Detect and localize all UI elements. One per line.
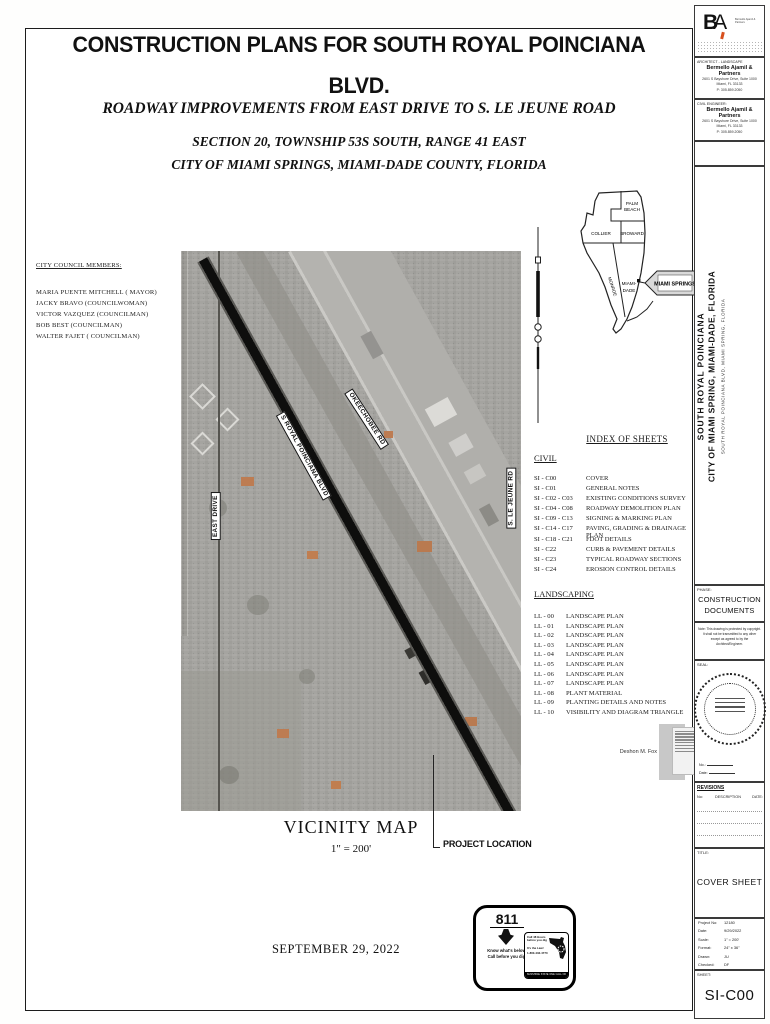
drawing-sheet: CONSTRUCTION PLANS FOR SOUTH ROYAL POINC… <box>25 28 693 1011</box>
ballfield <box>189 383 216 410</box>
engineer-firm: Bermello Ajamil & Partners <box>695 107 764 119</box>
sheet-row: LL - 06LANDSCAPE PLAN <box>534 671 692 681</box>
orange-roof <box>331 781 341 789</box>
sunshine-state-panel: Call 48 Hoursbefore you dig It's the Law… <box>524 932 569 979</box>
sheet-row: SI - C02 - C03EXISTING CONDITIONS SURVEY <box>534 495 692 505</box>
panel-bar: SUNSHINE STATE ONE CALL OF FLORIDA, INC. <box>525 972 568 978</box>
aerial-vicinity-map: EAST DRIVE S ROYAL POINCIANA BLVD OKEECH… <box>181 251 521 811</box>
project-title-block: SOUTH ROYAL POINCIANA CITY OF MIAMI SPRI… <box>694 166 765 585</box>
county-miami-dade-2: DADE <box>623 288 636 293</box>
main-title-line1: CONSTRUCTION PLANS FOR SOUTH ROYAL POINC… <box>36 32 682 58</box>
main-title-line2: BLVD. <box>36 73 682 99</box>
council-member: VICTOR VAZQUEZ (COUNCILMAN) <box>36 309 157 320</box>
phase-value: CONSTRUCTION DOCUMENTS <box>695 595 764 617</box>
section-township-line: SECTION 20, TOWNSHIP 53S SOUTH, RANGE 41… <box>26 134 692 150</box>
county-collier: COLLIER <box>591 231 611 236</box>
council-heading: CITY COUNCIL MEMBERS: <box>36 262 157 269</box>
sheet-row: SI - C24EROSION CONTROL DETAILS <box>534 566 692 576</box>
shovel-icon <box>498 929 514 945</box>
seal-date-line: Date: <box>699 769 735 775</box>
firm-logo-box: BA Bermello Ajamil & Partners <box>694 5 765 57</box>
sheet-title-block: TITLE: COVER SHEET <box>694 848 765 918</box>
sheet-row: SI - C00COVER <box>534 475 692 485</box>
sheet-label: SHEET: <box>697 972 711 977</box>
county-broward: BROWARD <box>620 231 645 236</box>
info-row: Format:24" x 36" <box>695 944 764 952</box>
parking-area <box>181 671 301 811</box>
city-council-members: CITY COUNCIL MEMBERS: MARIA PUENTE MITCH… <box>36 262 157 342</box>
phase-label: PHASE: <box>697 587 712 592</box>
phase-block: PHASE: CONSTRUCTION DOCUMENTS <box>694 585 765 622</box>
vicinity-map-caption: VICINITY MAP <box>251 817 451 838</box>
sheet-row: LL - 04LANDSCAPE PLAN <box>534 651 692 661</box>
sheet-row: LL - 02LANDSCAPE PLAN <box>534 632 692 642</box>
sheet-row: SI - C01GENERAL NOTES <box>534 485 692 495</box>
architect-block: ARCHITECT - LANDSCAPE Bermello Ajamil & … <box>694 57 765 99</box>
architect-label: ARCHITECT - LANDSCAPE <box>697 60 764 64</box>
county-palm-beach-1: PALM <box>626 201 638 206</box>
civil-sheet-list: SI - C00COVER SI - C01GENERAL NOTES SI -… <box>534 475 692 576</box>
sheet-title: COVER SHEET <box>695 877 764 887</box>
panel-phone: 1-800-432-4770 <box>527 952 548 955</box>
civil-heading: CIVIL <box>534 453 557 463</box>
vicinity-map-scale: 1" = 200' <box>251 843 451 855</box>
east-drive-label: EAST DRIVE <box>211 492 221 540</box>
engineer-label: CIVIL ENGINEER: <box>697 102 764 106</box>
orange-roof <box>277 729 289 738</box>
copyright-note-block: Note: This drawing is protected by copyr… <box>694 622 765 660</box>
sheet-row: SI - C14 - C17PAVING, GRADING & DRAINAGE… <box>534 525 692 535</box>
orange-roof <box>307 551 318 559</box>
logo-firm-name: Bermello Ajamil & Partners <box>735 18 761 25</box>
landscaping-sheet-list: LL - 00LANDSCAPE PLAN LL - 01LANDSCAPE P… <box>534 613 692 719</box>
811-number: 811 <box>490 911 524 928</box>
call-811-logo: 811 Know what's below. Call before you d… <box>473 905 576 991</box>
north-arrow-scalebar <box>531 227 545 423</box>
florida-silhouette-icon <box>547 936 567 962</box>
sheet-number-block: SHEET: SI-C00 <box>694 970 765 1019</box>
sheet-row: SI - C23TYPICAL ROADWAY SECTIONS <box>534 556 692 566</box>
stipple-texture <box>697 41 762 54</box>
sheet-row: LL - 05LANDSCAPE PLAN <box>534 661 692 671</box>
logo-accent <box>720 32 724 39</box>
revisions-label: REVISIONS <box>697 785 724 791</box>
info-row: Drawn:JU <box>695 953 764 961</box>
sheet-row: LL - 08PLANT MATERIAL <box>534 690 692 700</box>
panel-law: It's the Law! <box>527 947 544 950</box>
title-label: TITLE: <box>697 850 709 855</box>
seal-block: SEAL: No.: Date: <box>694 660 765 782</box>
project-info-block: Project No:12180 Date:9/29/2022 Scale:1"… <box>694 918 765 970</box>
sheet-row: SI - C22CURB & PAVEMENT DETAILS <box>534 546 692 556</box>
county-miami-dade-1: MIAMI- <box>622 281 637 286</box>
info-row: Project No:12180 <box>695 919 764 927</box>
cover-sheet-page: CONSTRUCTION PLANS FOR SOUTH ROYAL POINC… <box>0 0 770 1024</box>
revisions-block: REVISIONS No: DESCRIPTION DATE: <box>694 782 765 848</box>
sheet-number: SI-C00 <box>695 987 764 1004</box>
plan-date: SEPTEMBER 29, 2022 <box>231 942 441 957</box>
index-heading: INDEX OF SHEETS <box>562 434 692 444</box>
digital-signature-name: Deshon M. Fox <box>611 749 657 755</box>
architect-firm: Bermello Ajamil & Partners <box>695 65 764 77</box>
info-row: Checked:DF <box>695 961 764 969</box>
seal-no-line: No.: <box>699 761 733 767</box>
florida-inset-map: PALM BEACH BROWARD COLLIER MIAMI- DADE M… <box>559 187 707 339</box>
panel-call-48: Call 48 Hoursbefore you dig <box>527 936 547 943</box>
project-location-label: PROJECT LOCATION <box>443 839 532 850</box>
vertical-project-title: SOUTH ROYAL POINCIANA CITY OF MIAMI SPRI… <box>696 177 767 577</box>
le-jeune-road <box>181 251 188 636</box>
miami-springs-callout: MIAMI SPRINGS <box>654 282 696 288</box>
council-member: MARIA PUENTE MITCHELL ( MAYOR) <box>36 287 157 298</box>
tree-patch <box>219 766 239 784</box>
county-palm-beach-2: BEACH <box>624 207 640 212</box>
council-member: JACKY BRAVO (COUNCILWOMAN) <box>36 298 157 309</box>
engineer-block: CIVIL ENGINEER: Bermello Ajamil & Partne… <box>694 99 765 141</box>
sheet-row: LL - 10VISIBILITY AND DIAGRAM TRIANGLE <box>534 709 692 719</box>
sheet-row: LL - 03LANDSCAPE PLAN <box>534 642 692 652</box>
sheet-row: SI - C18 - C21FDOT DETAILS <box>534 536 692 546</box>
ballfield <box>190 431 214 455</box>
info-row: Scale:1" = 200' <box>695 936 764 944</box>
spacer-box <box>694 141 765 166</box>
sheet-row: LL - 00LANDSCAPE PLAN <box>534 613 692 623</box>
professional-seal <box>694 673 766 745</box>
subtitle: ROADWAY IMPROVEMENTS FROM EAST DRIVE TO … <box>26 100 692 118</box>
orange-roof <box>241 477 254 486</box>
council-member: WALTER FAJET ( COUNCILMAN) <box>36 331 157 342</box>
sheet-row: LL - 09PLANTING DETAILS AND NOTES <box>534 699 692 709</box>
revisions-columns: No: DESCRIPTION DATE: <box>697 795 763 799</box>
sheet-row: LL - 07LANDSCAPE PLAN <box>534 680 692 690</box>
info-row: Date:9/29/2022 <box>695 927 764 935</box>
sheet-row: LL - 01LANDSCAPE PLAN <box>534 623 692 633</box>
council-member: BOB BEST (COUNCILMAN) <box>36 320 157 331</box>
orange-roof <box>417 541 432 552</box>
orange-roof <box>384 431 393 438</box>
seal-label: SEAL: <box>697 662 708 667</box>
tree-patch <box>299 669 315 684</box>
landscaping-heading: LANDSCAPING <box>534 589 594 599</box>
royal-poinciana-label: S ROYAL POINCIANA BLVD <box>276 411 332 501</box>
le-jeune-label: S. LE JEUNE RD <box>506 468 516 529</box>
sheet-row: SI - C09 - C13SIGNING & MARKING PLAN <box>534 515 692 525</box>
city-county-line: CITY OF MIAMI SPRINGS, MIAMI-DADE COUNTY… <box>26 157 692 173</box>
sheet-row: SI - C04 - C08ROADWAY DEMOLITION PLAN <box>534 505 692 515</box>
tree-patch <box>247 595 269 615</box>
copyright-note: Note: This drawing is protected by copyr… <box>698 627 761 648</box>
